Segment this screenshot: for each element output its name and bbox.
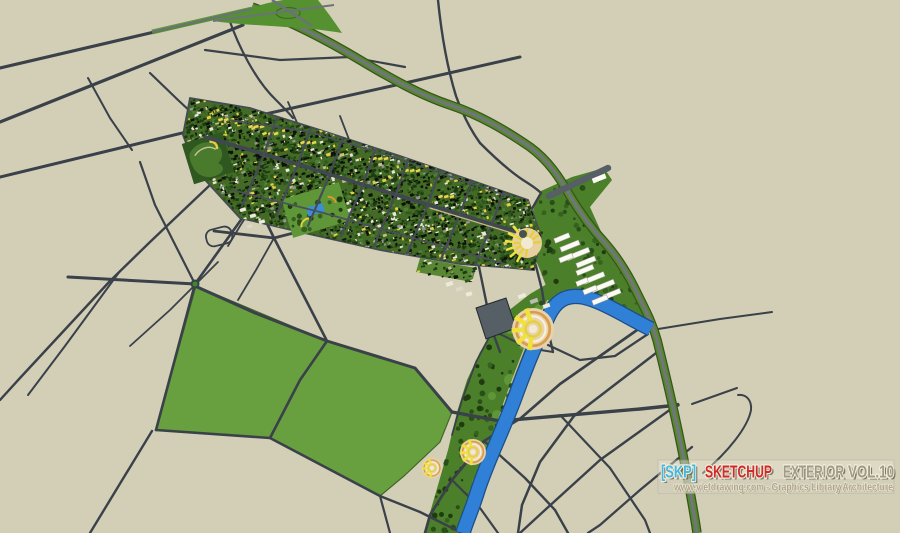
svg-text:www.vietdrawing.com - Graphics: www.vietdrawing.com - Graphics Library A… [673,482,893,494]
svg-text:SKETCHUP: SKETCHUP [705,462,772,482]
svg-text:EXTERIOR: EXTERIOR [783,462,844,482]
svg-text:[SKP]: [SKP] [661,462,696,482]
svg-text:VOL.10: VOL.10 [848,462,894,482]
